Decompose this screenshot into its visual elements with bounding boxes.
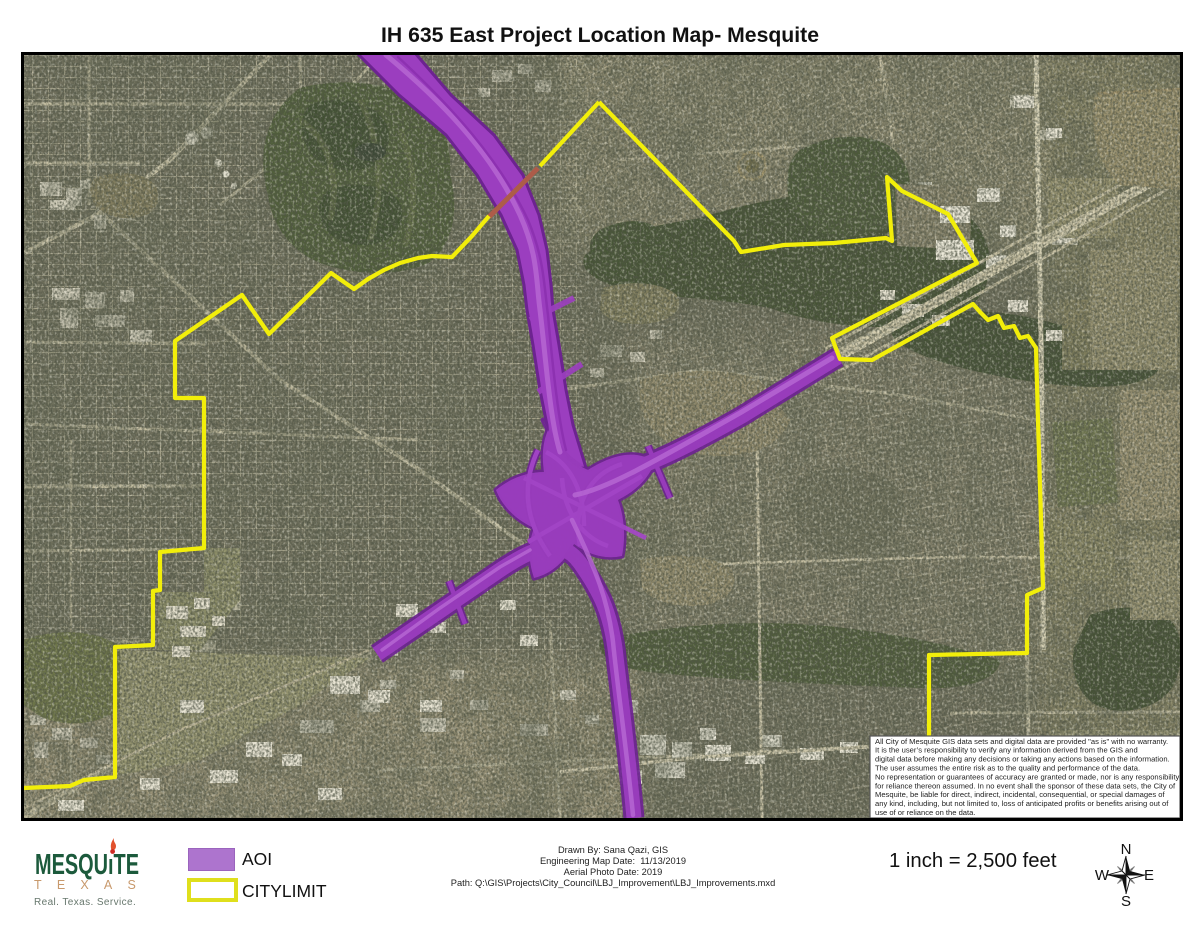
svg-text:The user assumes the entire ri: The user assumes the entire risk as to t… <box>875 764 1140 773</box>
svg-text:digital data before making any: digital data before making any decisions… <box>875 755 1170 764</box>
svg-text:All City of Mesquite GIS data: All City of Mesquite GIS data sets and d… <box>875 737 1168 746</box>
svg-text:S: S <box>1121 893 1131 910</box>
svg-text:TEXAS: TEXAS <box>34 878 151 892</box>
svg-text:W: W <box>1095 867 1110 884</box>
svg-text:No representation or guarantee: No representation or guarantees of accur… <box>875 772 1180 781</box>
svg-text:any kind, including, but not l: any kind, including, but not limited to,… <box>875 799 1169 808</box>
svg-text:It is the user’s responsibilit: It is the user’s responsibility to verif… <box>875 746 1138 755</box>
svg-text:Real. Texas. Service.: Real. Texas. Service. <box>34 897 136 908</box>
svg-text:for reliance thereon assumed.: for reliance thereon assumed. In no even… <box>875 781 1176 790</box>
svg-text:use of or reliance on the data: use of or reliance on the data. <box>875 808 975 817</box>
svg-text:N: N <box>1121 841 1132 858</box>
svg-text:Mesquite, be liable for direct: Mesquite, be liable for direct, indirect… <box>875 790 1165 799</box>
svg-text:E: E <box>1144 867 1154 884</box>
svg-text:MESQUıTE: MESQUıTE <box>35 849 139 881</box>
